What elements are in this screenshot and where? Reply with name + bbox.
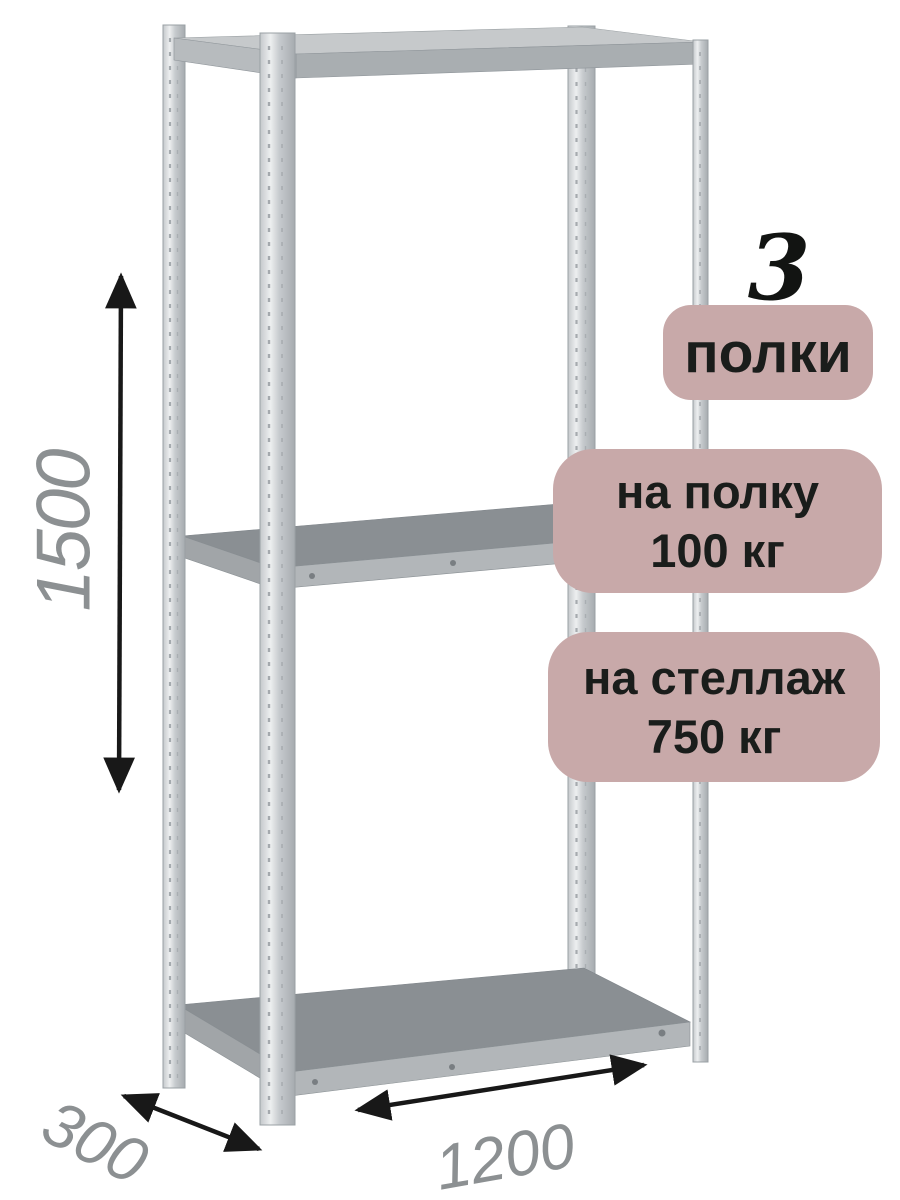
rack-top-frame xyxy=(174,27,702,78)
dimension-height-label: 1500 xyxy=(21,450,108,611)
badge-shelf-count-label: полки xyxy=(684,320,852,386)
badge-per-rack-line1: на стеллаж xyxy=(583,648,845,707)
product-image: 1500 300 1200 3 полки на полку 100 кг на… xyxy=(0,0,900,1200)
badge-shelf-count: полки xyxy=(663,305,873,400)
badge-per-rack-line2: 750 кг xyxy=(647,707,782,766)
badge-per-rack-capacity: на стеллаж 750 кг xyxy=(548,632,880,782)
shelves-count-number: 3 xyxy=(748,223,811,313)
badge-per-shelf-line2: 100 кг xyxy=(650,521,785,580)
rack-post-rear-left xyxy=(163,25,185,1088)
rack-shelf-bottom xyxy=(178,968,690,1096)
rack-post-front-left xyxy=(260,33,295,1125)
rack-illustration xyxy=(0,0,900,1200)
badge-per-shelf-line1: на полку xyxy=(616,462,819,521)
height-dimension-arrow xyxy=(119,276,121,790)
badge-per-shelf-capacity: на полку 100 кг xyxy=(553,449,882,593)
